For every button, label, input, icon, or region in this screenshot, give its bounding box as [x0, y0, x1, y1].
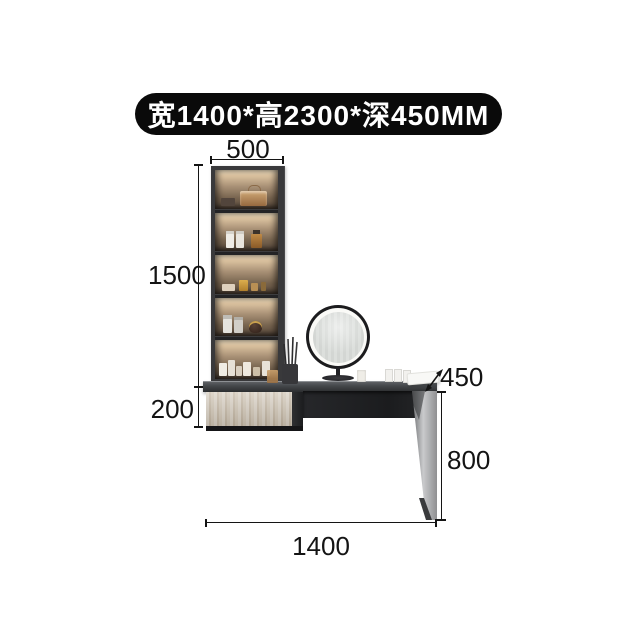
shelf-item-round-perfume: [249, 321, 262, 333]
shelf-item-bottle: [236, 366, 242, 376]
dim-label-total-width: 1400: [255, 533, 387, 559]
shelf-item-bag: [240, 191, 267, 206]
shelf-item-bottle: [243, 362, 251, 376]
shelf-cabinet: [211, 166, 285, 381]
tick-mark: [205, 519, 207, 527]
tick-mark: [437, 519, 446, 521]
product-diagram: 宽1400*高2300*深450MM 500 1500 200: [0, 0, 640, 640]
tick-mark: [194, 164, 203, 166]
shelf-compartment-1: [215, 170, 278, 209]
cosmetic-cup: [267, 370, 278, 383]
glass-cup: [357, 370, 366, 382]
drawer-side-panel: [292, 392, 303, 430]
size-banner: 宽1400*高2300*深450MM: [135, 93, 502, 135]
shelf-item-bottle: [226, 231, 234, 248]
shelf-compartment-4: [215, 298, 278, 337]
vanity-mirror: [306, 305, 370, 369]
shelf-item-diffuser: [261, 282, 266, 291]
cosmetic-box: [394, 369, 402, 382]
dim-line-leg-height: [441, 392, 442, 520]
shelf-item-bottle: [219, 363, 227, 376]
mirror-base: [322, 375, 354, 381]
tick-mark: [437, 391, 446, 393]
shelf-item-spray-bottle: [234, 317, 243, 333]
desk-leg: [405, 390, 440, 523]
mirror-face: [313, 312, 364, 363]
dim-label-shelf-height: 1500: [148, 262, 194, 288]
dim-line-shelf-width: [210, 159, 284, 160]
makeup-brush-holder: [280, 334, 304, 386]
tick-mark: [210, 156, 212, 164]
shelf-item-small-bottle: [251, 283, 258, 291]
tick-mark: [194, 426, 203, 428]
shelf-item-gold-bottle: [239, 280, 248, 291]
tick-mark: [435, 519, 437, 527]
shelf-compartment-2: [215, 213, 278, 252]
shelf-item-perfume: [251, 234, 262, 248]
shelf-item-bottle: [228, 360, 235, 376]
shelf-item-jar: [222, 284, 235, 291]
dim-label-leg-height: 800: [447, 447, 490, 473]
drawer-front: [206, 392, 292, 426]
dim-label-desk-depth: 450: [440, 364, 483, 390]
cosmetic-box: [385, 369, 393, 382]
shelf-compartment-3: [215, 255, 278, 294]
shelf-item-jar: [253, 367, 260, 376]
tick-mark: [282, 156, 284, 164]
dim-line-total-width: [205, 522, 437, 523]
dim-label-drawer-height: 200: [148, 396, 194, 422]
drawer-base-shadow: [206, 426, 303, 431]
shelf-item-box: [221, 198, 235, 206]
shelf-item-spray-bottle: [223, 315, 232, 333]
dim-line-left-heights: [198, 165, 199, 427]
size-banner-text: 宽1400*高2300*深450MM: [148, 94, 490, 134]
shelf-item-bottle: [236, 231, 244, 248]
tick-mark: [194, 386, 203, 388]
